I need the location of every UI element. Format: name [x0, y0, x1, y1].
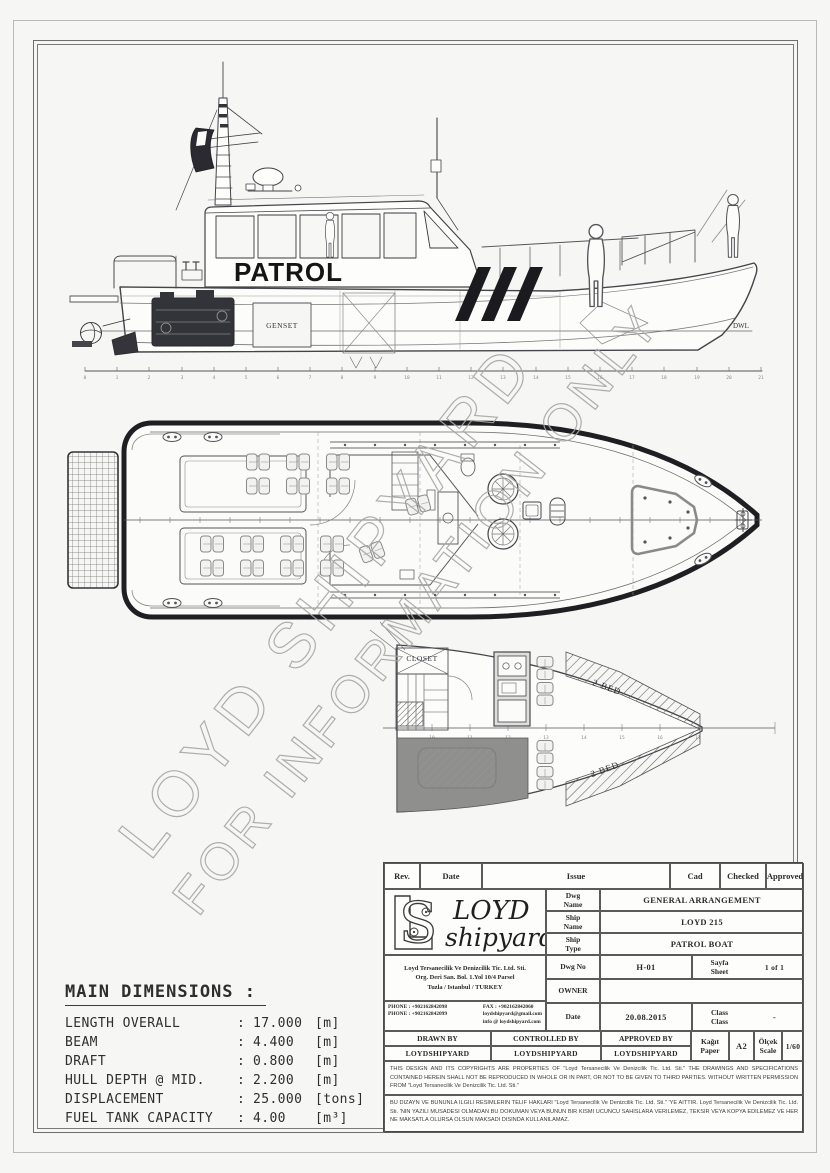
header-cad: Cad	[670, 863, 720, 889]
genset-box: GENSET	[253, 303, 311, 347]
company-logo: S LOYD shipyard	[384, 889, 546, 955]
dwg-name-label: Dwg Name	[546, 889, 600, 911]
cleat	[163, 433, 181, 442]
sheet-value: 1 of 1	[746, 955, 804, 979]
loyd-shipyard-logo: S LOYD shipyard	[385, 891, 545, 953]
ship-name-label: Ship Name	[546, 911, 600, 933]
ship-type-label: Ship Type	[546, 933, 600, 955]
disclaimer-english: THIS DESIGN AND ITS COPYRIGHTS ARE PROPE…	[384, 1061, 804, 1095]
date-value: 20.08.2015	[600, 1003, 692, 1031]
drawn-by-value: LOYDSHIPYARD	[384, 1046, 491, 1061]
svg-text:5: 5	[245, 375, 248, 381]
class-label: Class Class	[692, 1003, 746, 1031]
roof-rail	[208, 195, 424, 200]
disclaimer-turkish: BU DIZAYN VE BUNUNLA ILGILI RESIMLERIN T…	[384, 1095, 804, 1133]
boat-name-label: PATROL	[234, 257, 343, 287]
svg-text:3: 3	[181, 375, 184, 381]
svg-text:21: 21	[758, 375, 764, 381]
svg-text:8: 8	[341, 375, 344, 381]
company-contacts: PHONE : +902162842098 PHONE : +902162842…	[384, 1001, 546, 1031]
aft-deck-structure	[114, 256, 202, 288]
owner-label: OWNER	[546, 979, 600, 1003]
title-block: Rev. Date Issue Cad Checked Approved S L…	[383, 862, 803, 1132]
logo-name-line1: LOYD	[452, 896, 530, 926]
controlled-by-value: LOYDSHIPYARD	[491, 1046, 601, 1061]
dimension-row: DRAFT:0.800[m]	[65, 1052, 370, 1071]
svg-text:7: 7	[309, 375, 312, 381]
approved-by-label: APPROVED BY	[601, 1031, 691, 1046]
owner-value	[600, 979, 804, 1003]
cleat	[163, 599, 181, 608]
genset-label: GENSET	[266, 321, 298, 330]
main-dimensions-title: MAIN DIMENSIONS :	[65, 982, 266, 1006]
svg-text:19: 19	[694, 375, 700, 381]
scale-value: 1/60	[782, 1031, 804, 1061]
svg-text:4: 4	[213, 375, 216, 381]
signal-flag	[191, 128, 214, 172]
date-label: Date	[546, 1003, 600, 1031]
svg-text:10: 10	[404, 375, 410, 381]
main-dimensions-block: MAIN DIMENSIONS : LENGTH OVERALL:17.000[…	[65, 982, 370, 1128]
company-address: Loyd Tersanecilik Ve Denizcilik Tic. Ltd…	[384, 955, 546, 1001]
dwg-name-value: GENERAL ARRANGEMENT	[600, 889, 804, 911]
dimension-row: DISPLACEMENT:25.000[tons]	[65, 1090, 370, 1109]
svg-text:20: 20	[726, 375, 732, 381]
controlled-by-label: CONTROLLED BY	[491, 1031, 601, 1046]
sheet-label: Sayfa Sheet	[692, 955, 746, 979]
header-date: Date	[420, 863, 482, 889]
scale-label: Ölçek Scale	[754, 1031, 782, 1061]
company-fax-email: FAX : +902162842060 loydshipyard@gmail.c…	[483, 1004, 542, 1026]
dimension-row: LENGTH OVERALL:17.000[m]	[65, 1014, 370, 1033]
svg-text:2: 2	[148, 375, 151, 381]
header-issue: Issue	[482, 863, 670, 889]
swim-platform	[68, 452, 118, 588]
svg-text:6: 6	[277, 375, 280, 381]
header-checked: Checked	[720, 863, 766, 889]
aft-berth	[397, 738, 528, 812]
main-engine	[152, 290, 234, 346]
drawn-by-label: DRAWN BY	[384, 1031, 491, 1046]
drawing-sheet: 0123456789101112131415161718192021 DWL	[0, 0, 830, 1173]
cleat	[204, 433, 222, 442]
lower-deck-view: 1011121314151617 CLOSET	[370, 622, 775, 812]
header-approved: Approved	[766, 863, 804, 889]
header-rev: Rev.	[384, 863, 420, 889]
radar-dome	[246, 168, 301, 191]
logo-name-line2: shipyard	[445, 923, 545, 952]
dimension-row: HULL DEPTH @ MID.:2.200[m]	[65, 1071, 370, 1090]
dwl-label: DWL	[733, 322, 749, 330]
plan-centerline-ticks	[140, 517, 740, 523]
svg-text:16: 16	[657, 735, 663, 741]
figure-at-bow	[727, 194, 740, 257]
svg-text:15: 15	[619, 735, 625, 741]
frame-marks	[350, 357, 382, 368]
dwg-no-label: Dwg No	[546, 955, 600, 979]
ship-name-value: LOYD 215	[600, 911, 804, 933]
svg-text:11: 11	[436, 375, 442, 381]
svg-text:9: 9	[374, 375, 377, 381]
paper-value: A2	[729, 1031, 754, 1061]
cleat	[204, 599, 222, 608]
svg-text:18: 18	[661, 375, 667, 381]
ship-type-value: PATROL BOAT	[600, 933, 804, 955]
paper-label: Kağıt Paper	[691, 1031, 729, 1061]
approved-by-value: LOYDSHIPYARD	[601, 1046, 691, 1061]
logo-monogram-s: S	[399, 891, 437, 953]
profile-ruler-ticks	[85, 367, 761, 371]
dimension-row: BEAM:4.400[m]	[65, 1033, 370, 1052]
company-phones: PHONE : +902162842098 PHONE : +902162842…	[388, 1004, 447, 1019]
svg-text:1: 1	[116, 375, 119, 381]
galley-unit	[494, 652, 530, 726]
profile-station-labels: 0123456789101112131415161718192021	[84, 375, 764, 381]
class-value: -	[746, 1003, 804, 1031]
svg-text:14: 14	[581, 735, 587, 741]
dwg-no-value: H-01	[600, 955, 692, 979]
svg-text:0: 0	[84, 375, 87, 381]
dimension-row: FUEL TANK CAPACITY:4.00[m³]	[65, 1109, 370, 1128]
